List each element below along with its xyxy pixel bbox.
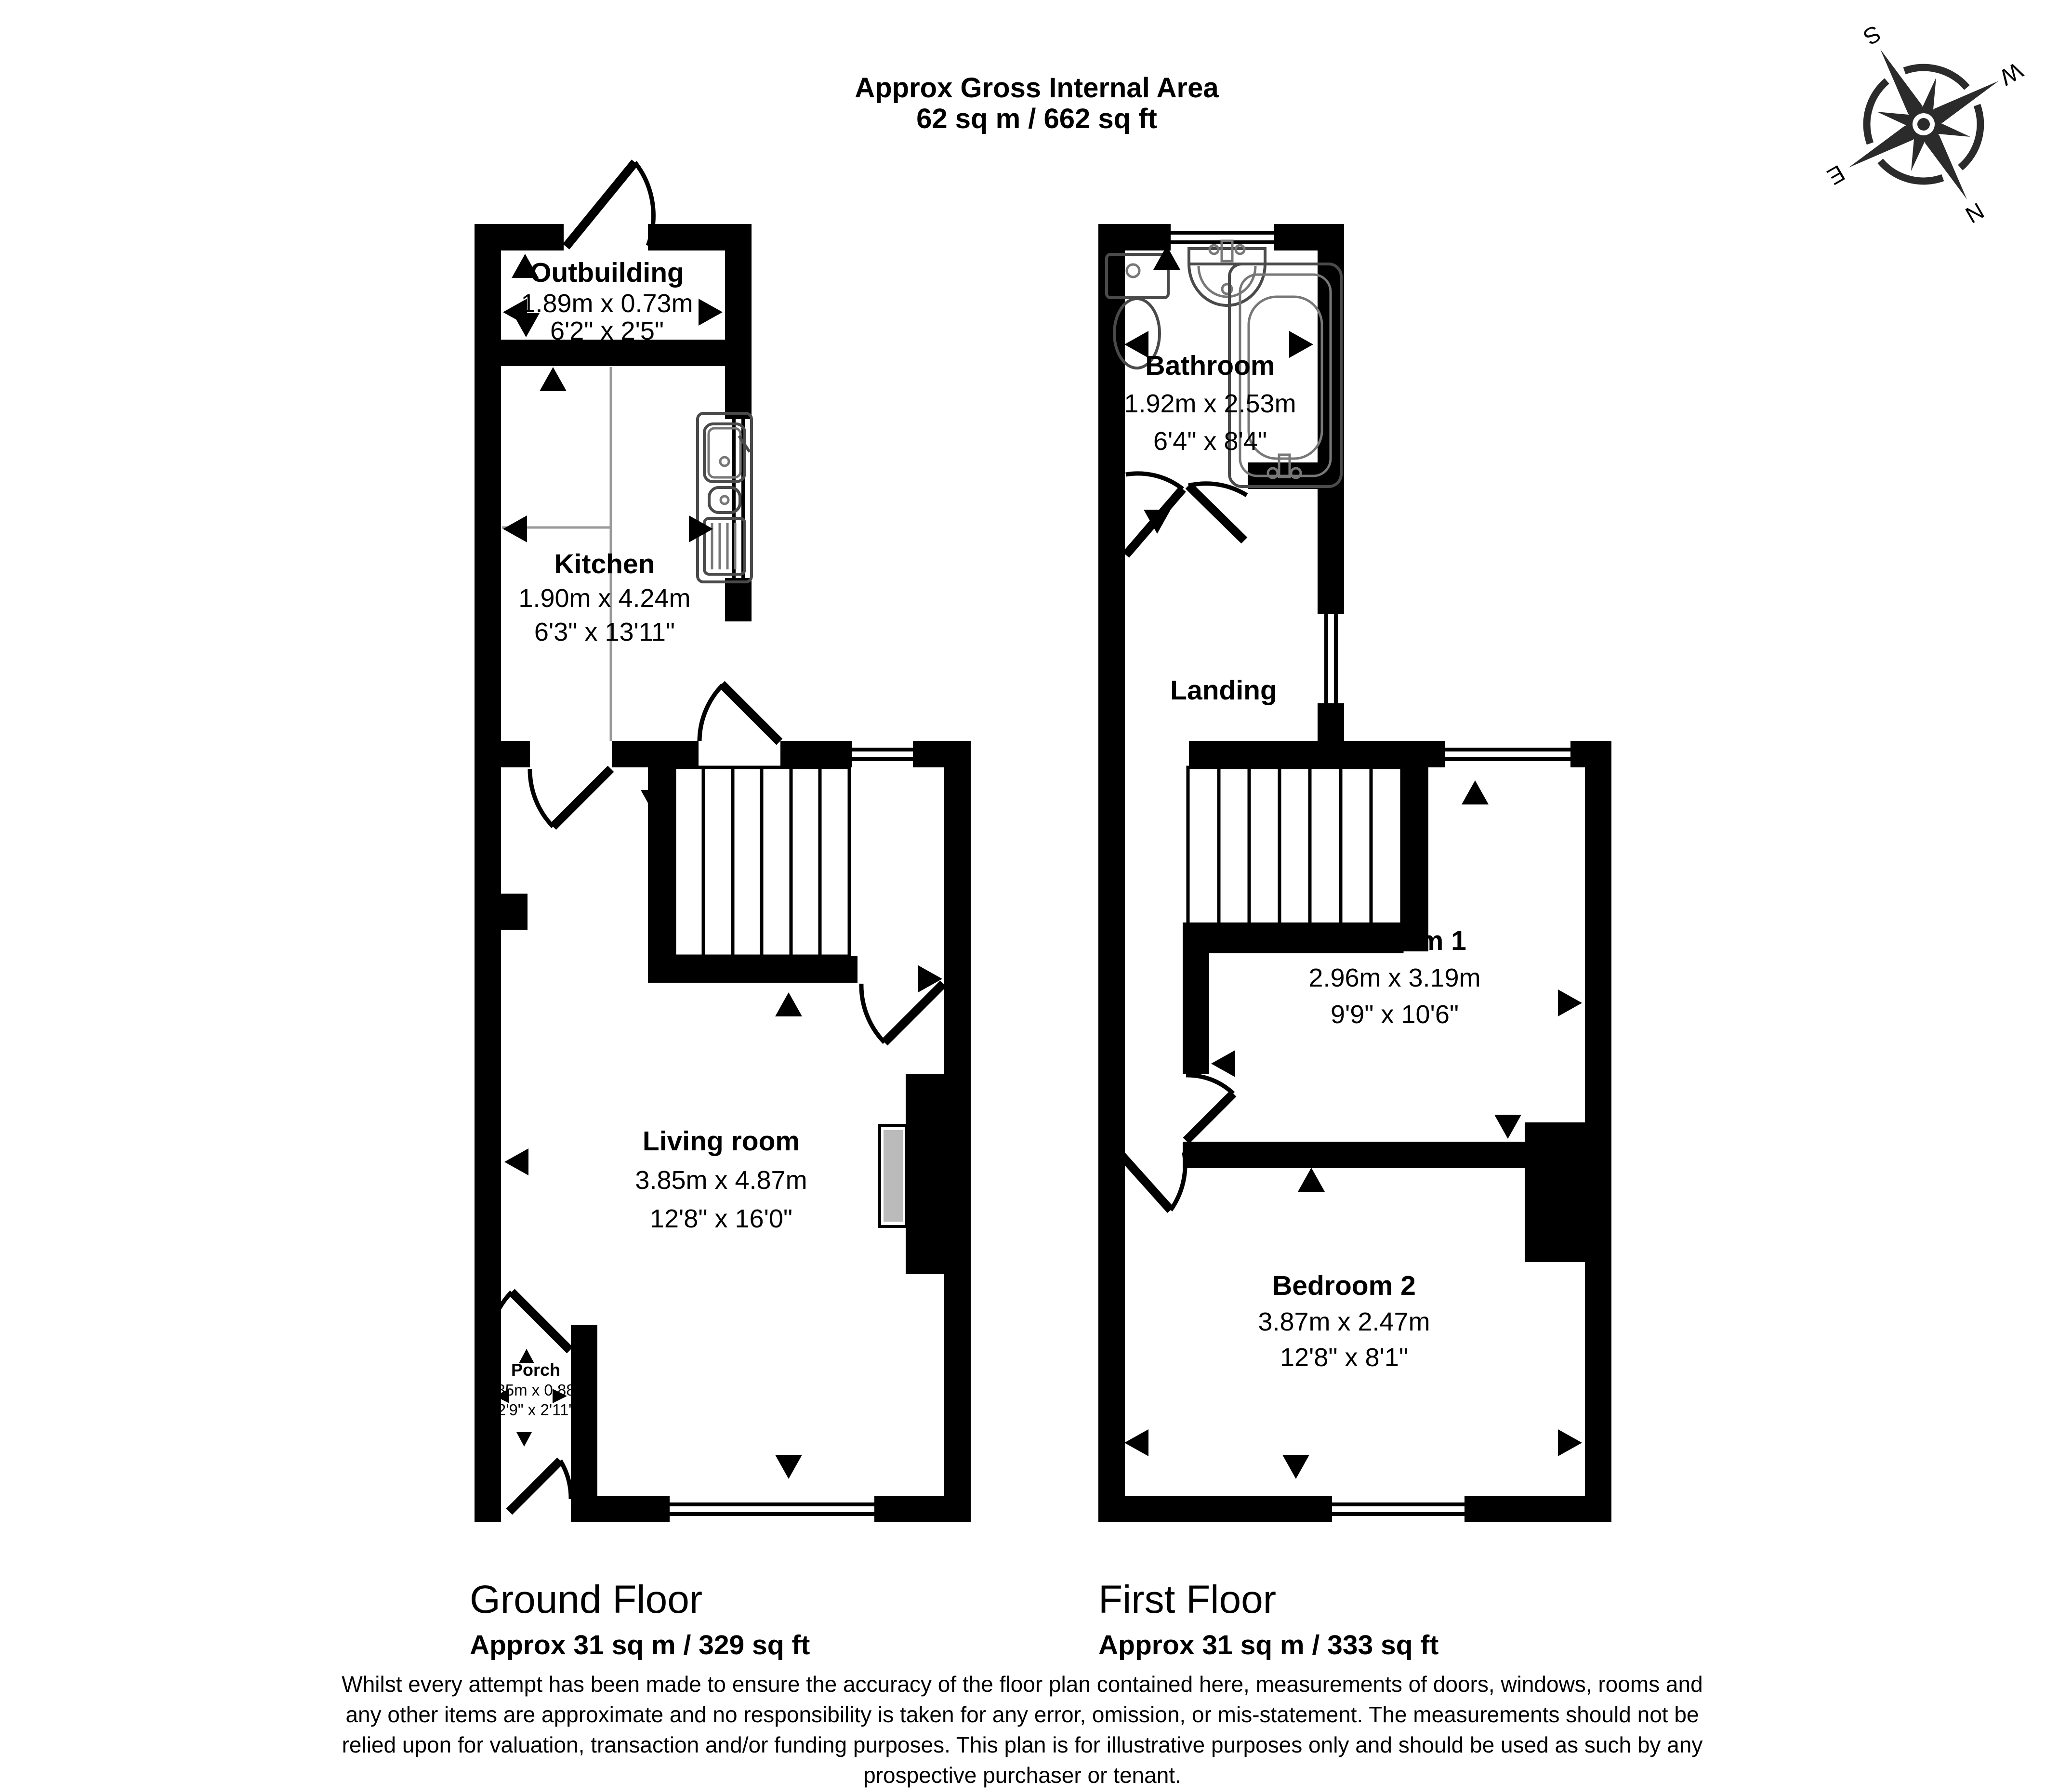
ground-floor-plan: Outbuilding 1.89m x 0.73m 6'2" x 2'5" Ki…	[475, 162, 971, 1522]
dim-arrow-left	[1211, 1050, 1235, 1077]
landing-cupboard-door	[1188, 484, 1247, 540]
door-leaf	[884, 984, 943, 1042]
dim-arrow-up	[1462, 780, 1489, 804]
wall-segment	[1098, 1496, 1332, 1522]
porch-label: Porch	[511, 1360, 560, 1380]
door-leaf	[1186, 1094, 1233, 1141]
bathroom-label: Bathroom	[1145, 350, 1275, 381]
bedroom2-label: Bedroom 2	[1272, 1270, 1416, 1301]
door-leaf	[509, 1461, 560, 1512]
compass-label-e: E	[1823, 160, 1849, 190]
bathroom-dim-metric: 1.92m x 2.53m	[1124, 389, 1296, 418]
bedroom2-dim-imperial: 12'8" x 8'1"	[1280, 1343, 1408, 1372]
dim-arrow-up	[540, 367, 567, 391]
compass-label-n: N	[1961, 198, 1988, 228]
compass-point-south	[1873, 45, 1922, 114]
dim-arrow-up	[775, 992, 802, 1016]
compass-rose-icon: N E S W	[1771, 0, 2045, 278]
door-swing-arc	[1126, 474, 1183, 489]
dim-arrow-right	[699, 299, 723, 326]
door-leaf	[722, 684, 779, 742]
wall-segment	[648, 956, 858, 983]
first-floor-area: Approx 31 sq m / 333 sq ft	[1098, 1630, 1438, 1660]
door-leaf	[566, 162, 635, 247]
door-swing-arc	[1186, 1075, 1233, 1094]
wall-segment	[725, 224, 752, 419]
kitchen-hall-door	[699, 684, 779, 742]
wall-segment	[571, 1496, 670, 1522]
floor-plan-svg: Approx Gross Internal Area 62 sq m / 662…	[0, 0, 2045, 1792]
fireplace-icon	[880, 1125, 907, 1226]
sink-bowl	[704, 424, 745, 482]
bedroom2-window	[1332, 1504, 1464, 1514]
wall-segment	[1183, 1142, 1585, 1168]
dim-arrow-left	[504, 1148, 528, 1175]
wall-segment	[1098, 224, 1125, 1522]
floor-plan-page: Approx Gross Internal Area 62 sq m / 662…	[0, 0, 2045, 1792]
disclaimer-line4: prospective purchaser or tenant.	[863, 1763, 1181, 1788]
living-room-dim-imperial: 12'8" x 16'0"	[650, 1204, 792, 1233]
dim-arrow-left	[1124, 1429, 1148, 1456]
wall-segment	[725, 578, 752, 621]
wall-segment	[501, 741, 530, 767]
wall-segment	[944, 741, 971, 1522]
living-room-label: Living room	[643, 1126, 800, 1157]
compass-label-w: W	[1995, 57, 2027, 90]
wall-segment	[1183, 951, 1209, 1074]
door-leaf	[1188, 486, 1244, 540]
ground-floor-title: Ground Floor	[470, 1578, 702, 1621]
toilet-flush	[1127, 264, 1139, 277]
porch-front-door	[509, 1461, 571, 1512]
wall-segment	[648, 741, 699, 767]
compass-point-west	[1934, 74, 2003, 123]
sink-bowl-inner	[709, 428, 740, 477]
outbuilding-door	[566, 162, 653, 247]
door-swing-arc	[1171, 1152, 1185, 1210]
bedroom1-dim-imperial: 9'9" x 10'6"	[1331, 1000, 1459, 1029]
kitchen-label: Kitchen	[554, 549, 655, 580]
hall-living-room-door	[861, 984, 943, 1042]
basin-bowl-inner	[1199, 266, 1255, 297]
dim-arrow-right	[1558, 1429, 1582, 1456]
door-swing-arc	[635, 162, 653, 246]
dim-arrow-right	[1558, 989, 1582, 1016]
wall-segment	[1189, 741, 1445, 767]
basin-icon	[1189, 241, 1265, 305]
fireplace-inset	[884, 1130, 903, 1222]
first-floor-plan: Bathroom 1.92m x 2.53m 6'4" x 8'4" Landi…	[1098, 224, 1611, 1522]
outbuilding-dim-metric: 1.89m x 0.73m	[521, 289, 693, 318]
door-swing-arc	[560, 1461, 571, 1499]
living-room-dim-metric: 3.85m x 4.87m	[635, 1166, 807, 1195]
door-leaf	[553, 769, 611, 827]
disclaimer-line2: any other items are approximate and no r…	[345, 1702, 1699, 1727]
chimney-breast	[906, 1074, 944, 1274]
bedroom1-window	[1445, 750, 1570, 759]
door-swing-arc	[699, 685, 723, 741]
sink-drain	[720, 457, 729, 466]
landing-label: Landing	[1170, 675, 1277, 706]
dim-arrow-down	[1282, 1455, 1309, 1479]
dim-arrow-left	[503, 515, 527, 542]
bathroom-dim-imperial: 6'4" x 8'4"	[1153, 427, 1267, 456]
wall-segment	[1464, 1496, 1611, 1522]
living-room-window	[670, 1504, 874, 1514]
wall-segment	[475, 224, 501, 1522]
dim-arrow-up	[1298, 1168, 1325, 1192]
landing-window	[1326, 614, 1336, 703]
compass-point-east	[1845, 125, 1913, 174]
page-title-line1: Approx Gross Internal Area	[855, 72, 1219, 104]
wall-segment	[874, 1496, 971, 1522]
wall-segment	[1585, 741, 1611, 1522]
bedroom1-door	[1186, 1075, 1233, 1141]
outbuilding-dim-imperial: 6'2" x 2'5"	[550, 316, 664, 345]
dim-arrow-down	[516, 1432, 532, 1447]
ground-floor-stairs	[674, 767, 849, 956]
ground-floor-area: Approx 31 sq m / 329 sq ft	[470, 1630, 810, 1660]
sink-drain-small	[721, 496, 728, 504]
porch-dim-imperial: 2'9" x 2'11"	[497, 1401, 574, 1419]
disclaimer-line3: relied upon for valuation, transaction a…	[342, 1732, 1703, 1757]
sink-drainer	[704, 518, 745, 574]
door-swing-arc	[530, 769, 553, 827]
bedroom2-dim-metric: 3.87m x 2.47m	[1258, 1307, 1430, 1336]
hall-window	[852, 750, 913, 759]
disclaimer-line1: Whilst every attempt has been made to en…	[342, 1672, 1702, 1697]
dim-arrow-down	[775, 1455, 802, 1479]
bedroom1-label: Bedroom 1	[1323, 925, 1466, 956]
compass-label-s: S	[1859, 20, 1885, 50]
kitchen-dim-metric: 1.90m x 4.24m	[518, 584, 690, 613]
bedroom1-dim-metric: 2.96m x 3.19m	[1308, 963, 1480, 992]
dim-arrow-down	[1494, 1115, 1521, 1139]
door-swing-arc	[861, 984, 884, 1042]
wall-segment	[571, 1325, 597, 1522]
wall-segment	[501, 894, 528, 930]
bedroom1-dimension-arrows	[1211, 780, 1582, 1139]
dim-arrow-right	[1289, 331, 1313, 358]
outbuilding-label: Outbuilding	[530, 257, 684, 288]
page-title-line2: 62 sq m / 662 sq ft	[916, 103, 1157, 134]
wall-segment	[780, 741, 852, 767]
compass-point-north	[1925, 134, 1974, 203]
chimney-breast	[1525, 1122, 1585, 1262]
wall-segment	[612, 741, 648, 767]
door-leaf	[512, 1292, 570, 1350]
first-floor-title: First Floor	[1098, 1578, 1276, 1621]
porch-dim-metric: 0.85m x 0.88m	[483, 1381, 588, 1399]
kitchen-lobby-door	[530, 769, 611, 827]
kitchen-dim-imperial: 6'3" x 13'11"	[534, 618, 675, 646]
